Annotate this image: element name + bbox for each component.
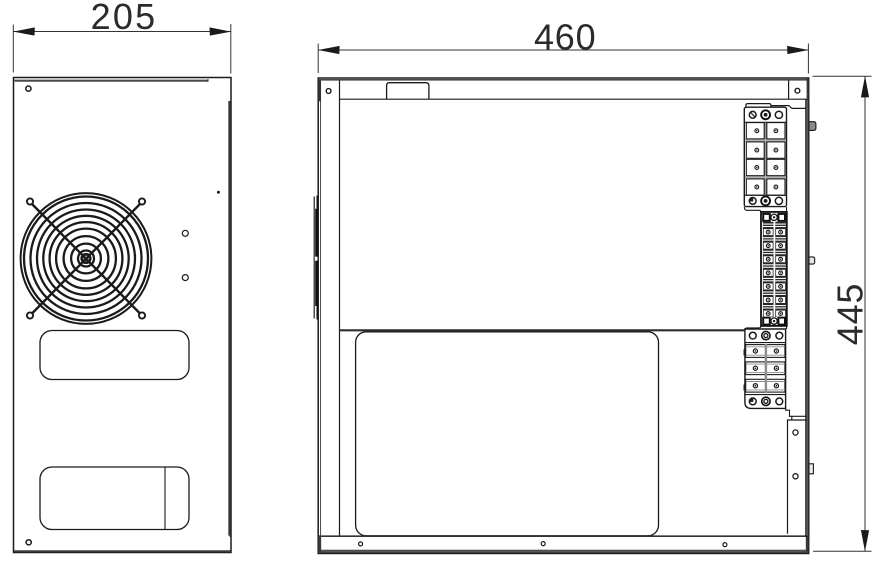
- svg-text:205: 205: [91, 0, 158, 37]
- svg-text:460: 460: [534, 17, 596, 58]
- svg-text:445: 445: [829, 283, 870, 345]
